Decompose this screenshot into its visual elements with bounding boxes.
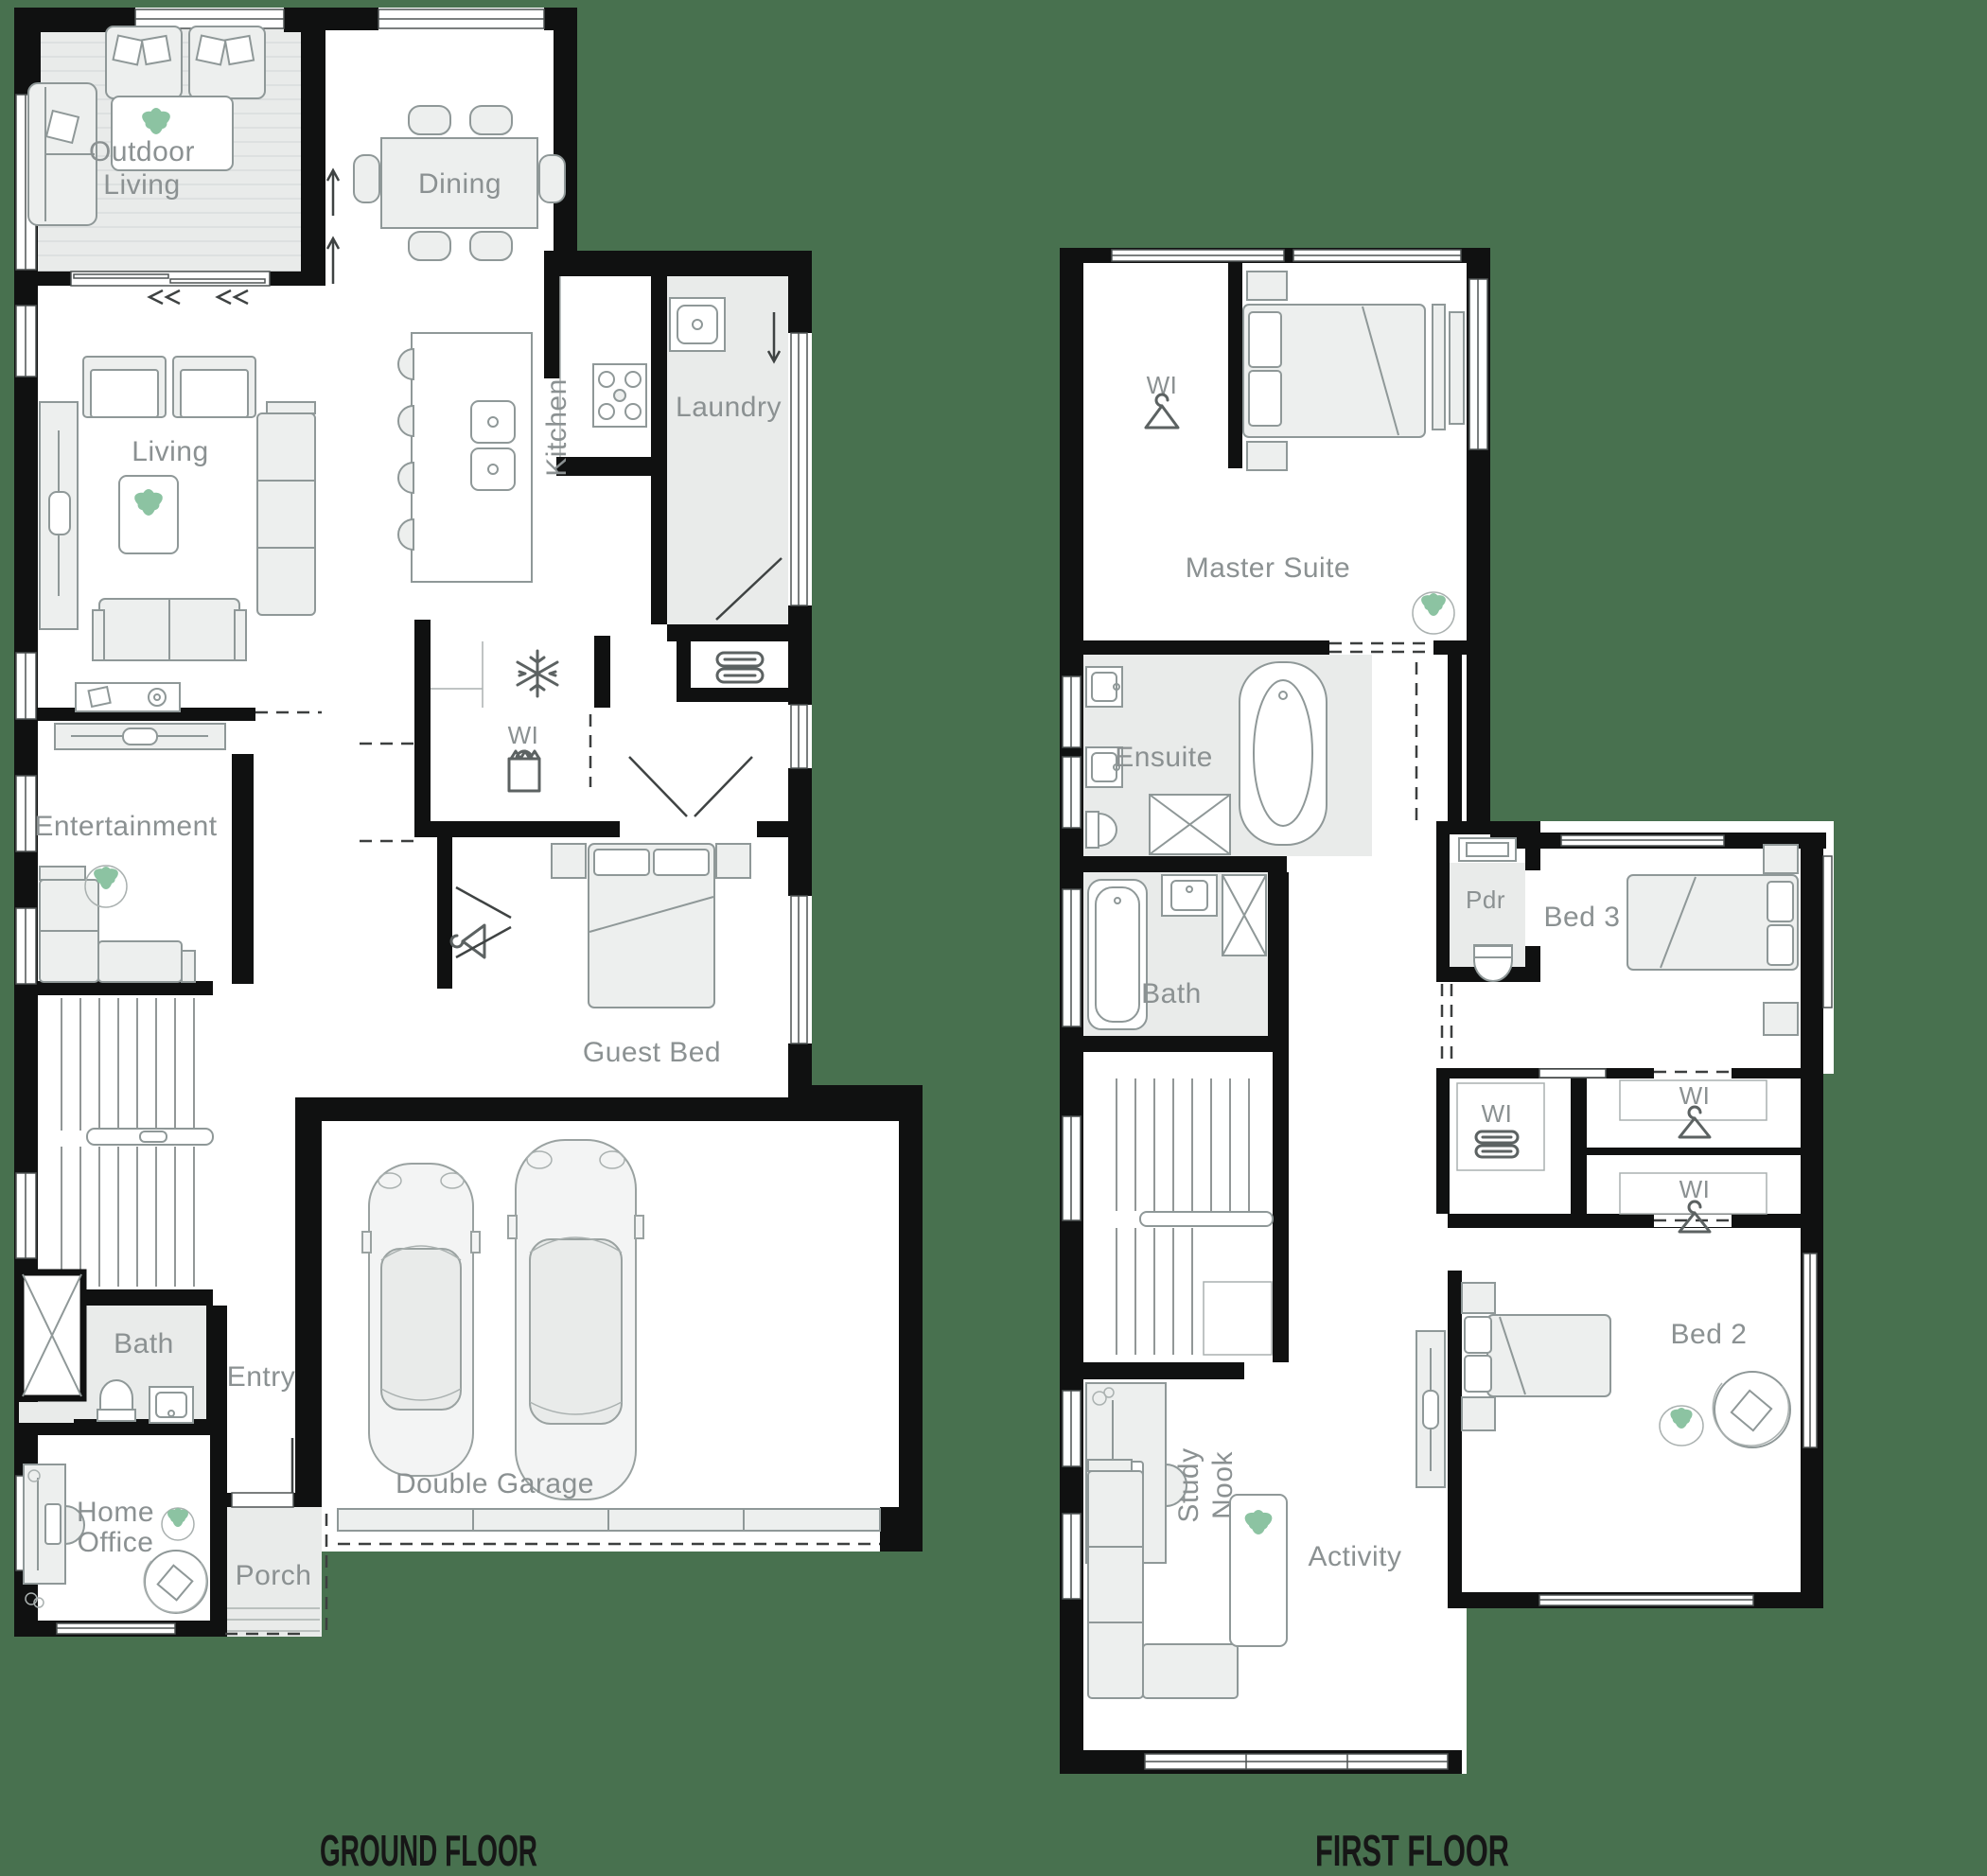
ground-floor-title: GROUND FLOOR: [320, 1826, 537, 1875]
car-icon: [508, 1140, 643, 1499]
tv-media-unit: [40, 402, 78, 629]
vanity-sink-icon: [149, 1387, 193, 1423]
first-floor-title: FIRST FLOOR: [1315, 1826, 1509, 1875]
room-label-home-office-1: Home: [77, 1497, 154, 1528]
room-label-ensuite: Ensuite: [1115, 742, 1213, 773]
living-rug: [119, 476, 178, 553]
bathtub-icon: [1240, 662, 1327, 845]
cooktop-stove: [593, 364, 646, 427]
room-label-wi-linen: WI: [1482, 1099, 1513, 1128]
shower-icon: [21, 1272, 83, 1398]
outdoor-sofa: [28, 83, 97, 225]
living-armchair: [173, 357, 255, 417]
room-label-double-garage: Double Garage: [396, 1468, 594, 1499]
room-label-master-suite: Master Suite: [1186, 552, 1350, 584]
room-label-living: Living: [132, 436, 208, 467]
living-armchair: [83, 357, 166, 417]
toilet-cistern: [1459, 838, 1516, 861]
room-label-dining: Dining: [418, 168, 501, 200]
floorplan-canvas: Outdoor Living Dining: [0, 0, 1987, 1876]
room-label-guest-bed: Guest Bed: [583, 1037, 721, 1068]
vanity-sink-icon: [1162, 875, 1217, 916]
tv-bench: [76, 683, 180, 711]
laundry-sink: [670, 298, 725, 351]
room-label-study-nook-1: Study: [1173, 1447, 1205, 1522]
room-label-pdr: Pdr: [1466, 885, 1505, 914]
car-icon: [362, 1164, 480, 1476]
room-label-bed-3: Bed 3: [1544, 902, 1621, 933]
tv-unit: [1416, 1331, 1445, 1487]
room-label-wi-pantry: WI: [508, 721, 539, 749]
outdoor-armchair: [106, 26, 182, 98]
round-chair: [144, 1551, 207, 1613]
living-sofa: [93, 599, 246, 660]
activity-rug: [1230, 1495, 1287, 1646]
room-label-bed-2: Bed 2: [1671, 1319, 1748, 1350]
first-floor-plan: WI Master Suite Ensuite: [1060, 248, 1834, 1875]
room-label-entry: Entry: [227, 1361, 296, 1393]
sliding-door: [71, 272, 270, 286]
room-label-porch: Porch: [236, 1560, 312, 1591]
room-label-home-office-2: Office: [78, 1527, 154, 1558]
room-label-bath-first: Bath: [1141, 978, 1202, 1009]
floorplan-page: { "page": { "background_color": "#48714F…: [0, 0, 1987, 1876]
room-label-outdoor-living-1: Outdoor: [89, 136, 195, 167]
room-label-kitchen: Kitchen: [541, 378, 572, 477]
ground-floor-plan: Outdoor Living Dining: [14, 8, 923, 1875]
entertainment-media-wall: [55, 724, 225, 749]
toilet-icon: [1474, 945, 1512, 981]
room-label-laundry: Laundry: [676, 392, 782, 423]
living-l-sofa: [257, 402, 315, 615]
toilet-icon: [97, 1380, 135, 1421]
room-label-outdoor-living-2: Living: [103, 169, 180, 201]
room-label-entertainment: Entertainment: [34, 811, 217, 842]
garage-door: [338, 1509, 880, 1531]
outdoor-armchair: [189, 26, 265, 98]
shower-icon: [1222, 875, 1266, 956]
bathtub-icon: [1088, 880, 1147, 1029]
room-label-wi-robe-2: WI: [1679, 1175, 1711, 1203]
shower-icon: [1150, 795, 1230, 854]
room-label-activity: Activity: [1308, 1541, 1401, 1572]
bath-shelf: [19, 1402, 74, 1423]
kitchen-island: [398, 333, 532, 582]
round-chair: [1713, 1372, 1790, 1447]
vanity-sink-icon: [1086, 667, 1122, 707]
room-label-bath-ground: Bath: [114, 1328, 174, 1359]
